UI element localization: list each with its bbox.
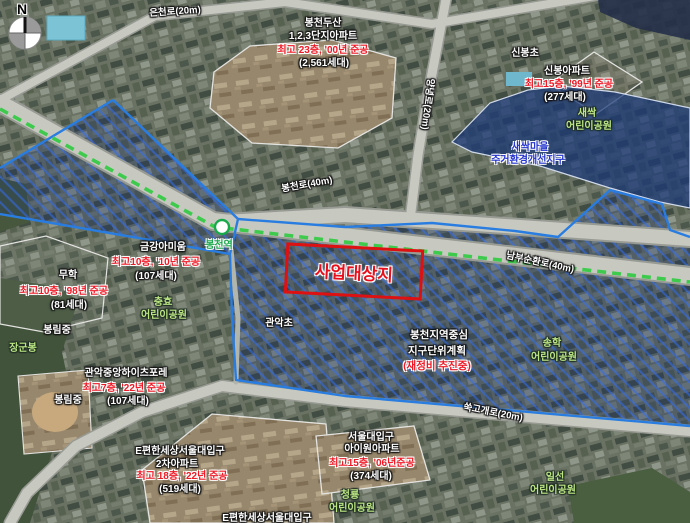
project-site-box: 사업대상지 [284,242,424,300]
blue-roof-building-2 [506,72,532,86]
dusan-complex-polygon [210,40,396,148]
subway-station-marker [215,220,229,234]
blue-roof-building [47,16,85,40]
project-site-label: 사업대상지 [314,257,393,286]
school-field-oval [32,392,78,432]
annotated-satellite-map: N 은천로(20m) 양녕로(20m) 봉천로(40m) 남부순환로(40m) … [0,0,690,523]
compass-icon [9,17,41,49]
